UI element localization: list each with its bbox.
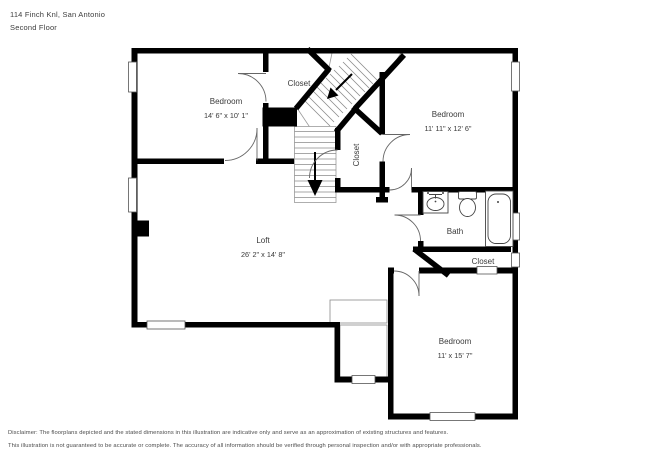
window: [512, 62, 520, 91]
room-label-bedroom-tr: Bedroom: [432, 110, 465, 119]
room-dims-loft: 26' 2" x 14' 8": [241, 250, 285, 259]
room-label-bedroom-br: Bedroom: [439, 337, 472, 346]
room-labels: Bedroom 14' 6" x 10' 1" Closet Bedroom 1…: [204, 79, 495, 360]
room-label-bath: Bath: [447, 227, 463, 236]
vertical-staircase: [295, 127, 337, 203]
pillar: [137, 221, 149, 237]
room-label-closet-br: Closet: [472, 257, 495, 266]
door: [225, 128, 257, 161]
room-dims-bedroom-tl: 14' 6" x 10' 1": [204, 111, 248, 120]
window: [129, 178, 137, 212]
floorplan-svg: Bedroom 14' 6" x 10' 1" Closet Bedroom 1…: [0, 0, 650, 460]
window: [430, 413, 475, 421]
wall: [132, 48, 519, 54]
disclaimer-line2: This illustration is not guaranteed to b…: [8, 443, 482, 449]
door: [394, 271, 419, 296]
window: [129, 62, 137, 92]
floorplan-page: 114 Finch Knl, San Antonio Second Floor: [0, 0, 650, 460]
sink-icon: [423, 192, 448, 214]
bathtub-icon: [486, 191, 514, 247]
disclaimer-line1: Disclaimer: The floorplans depicted and …: [8, 430, 448, 436]
sliding-door: [477, 267, 497, 275]
door: [395, 215, 421, 241]
door: [383, 135, 410, 162]
toilet-icon: [459, 192, 477, 217]
room-label-closet-mid: Closet: [352, 143, 361, 166]
window: [352, 376, 375, 384]
bath-fixtures: [423, 191, 513, 247]
door: [390, 168, 412, 190]
room-label-bedroom-tl: Bedroom: [210, 97, 243, 106]
room-label-loft: Loft: [256, 236, 270, 245]
window: [512, 253, 520, 267]
room-dims-bedroom-tr: 11' 11" x 12' 6": [424, 124, 471, 133]
room-label-closet-top: Closet: [288, 79, 311, 88]
window: [147, 321, 185, 329]
room-dims-bedroom-br: 11' x 15' 7": [438, 351, 473, 360]
